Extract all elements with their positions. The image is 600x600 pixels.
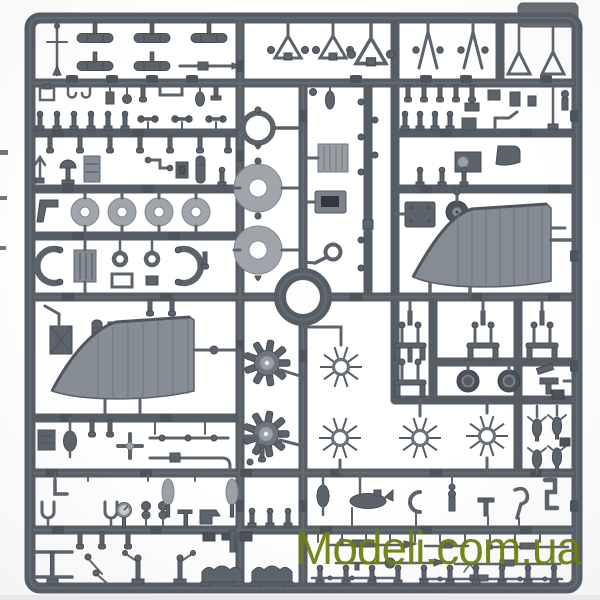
parts-right-mid xyxy=(394,302,572,399)
parts-left-fittings xyxy=(35,156,226,186)
photo-bottom-edge xyxy=(0,595,600,600)
sprue-svg xyxy=(0,0,600,600)
parts-triangle-struts xyxy=(268,22,565,74)
wing-panel-mid-left xyxy=(45,299,240,414)
parts-cowl-rings xyxy=(234,107,299,281)
parts-detail-row-right xyxy=(317,473,557,526)
parts-c-rings xyxy=(37,241,208,292)
parts-small-bombs xyxy=(528,406,570,473)
parts-bottom-left xyxy=(36,530,293,586)
watermark: Modeli.com.ua xyxy=(295,524,600,572)
parts-top-left-tanks xyxy=(47,24,240,76)
photo-edge-fragments xyxy=(0,150,8,250)
sprue-photo: Modeli.com.ua xyxy=(0,0,600,600)
parts-donut-wheels xyxy=(37,193,210,232)
parts-gauge-row-left xyxy=(42,473,292,528)
wing-panel-upper-right xyxy=(395,189,572,297)
parts-underwing-row xyxy=(38,418,266,470)
